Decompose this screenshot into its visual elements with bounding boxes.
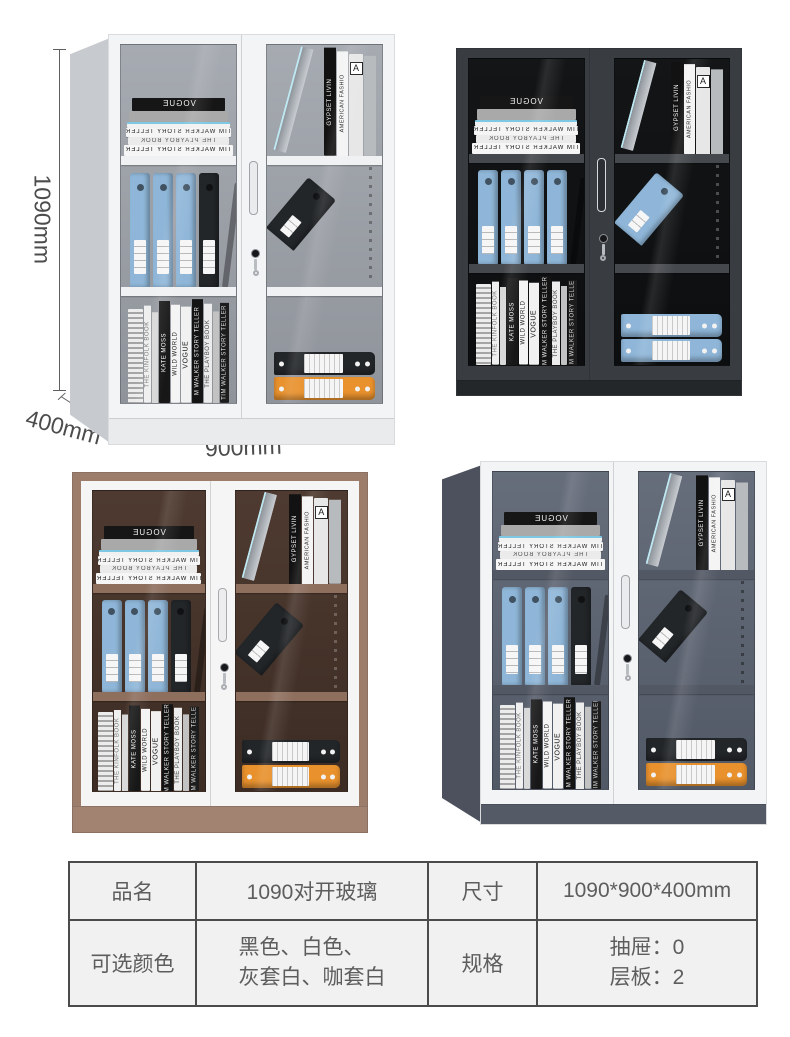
cabinet-right-door: GYPSET LIVINAMERICAN FASHIOA bbox=[613, 462, 766, 804]
binder-ring-hole bbox=[108, 608, 115, 615]
cabinet-base-plinth bbox=[457, 380, 741, 395]
binder-ring-hole bbox=[508, 178, 515, 185]
stacked-book: VOGUE bbox=[480, 96, 573, 109]
left-glass-pane: VOGUETIM WALKER STORY TELLERTHE PLAYBOY … bbox=[492, 471, 609, 790]
blue-ring-binder bbox=[102, 600, 122, 692]
blue-ring-binder bbox=[125, 600, 145, 692]
book-title-text: VOGUE bbox=[162, 100, 196, 108]
book-spine-row: THE KINFOLK BOOKKATE MOSSWILD WORLDVOGUE… bbox=[469, 273, 584, 365]
book-spine bbox=[711, 69, 723, 154]
book-spine-row: THE KINFOLK BOOKKATE MOSSWILD WORLDVOGUE… bbox=[493, 694, 608, 789]
shelf bbox=[236, 584, 348, 593]
binder-ring-hole bbox=[532, 596, 539, 603]
binder-label bbox=[676, 765, 714, 784]
rivet-dot bbox=[365, 386, 370, 391]
binder-ring-hole bbox=[183, 184, 190, 191]
binder-ring-hole bbox=[531, 178, 538, 185]
book-spine: THE PLAYBOY BOOK bbox=[576, 702, 584, 789]
shelf bbox=[267, 156, 382, 165]
blue-ring-binder bbox=[502, 587, 522, 685]
book-title-text: TIM WALKER STORY TELLER bbox=[125, 147, 231, 153]
rivet-dot bbox=[279, 386, 284, 391]
black-ring-binder bbox=[571, 587, 591, 685]
tilted-black-binder bbox=[236, 602, 305, 676]
book-spine: VOGUE bbox=[553, 704, 563, 789]
book-spine: KATE MOSS bbox=[507, 278, 518, 365]
black-ring-binder bbox=[199, 173, 219, 286]
key-ring-icon bbox=[600, 255, 606, 261]
binder-spine-label bbox=[129, 654, 141, 682]
middle-compartment bbox=[469, 163, 584, 264]
book-spine: THE KINFOLK BOOK bbox=[114, 710, 121, 791]
spec-value-colors-line1: 黑色、白色、 bbox=[239, 933, 386, 963]
rivet-dot bbox=[737, 772, 742, 777]
spec-value-colors-text: 黑色、白色、 灰套白、咖套白 bbox=[239, 933, 386, 994]
spec-label-configuration: 规格 bbox=[429, 921, 536, 1005]
right-glass-pane: GYPSET LIVINAMERICAN FASHIOA bbox=[235, 490, 349, 792]
rivet-dot bbox=[727, 772, 732, 777]
book-spine bbox=[122, 715, 128, 792]
binder-spine-label bbox=[529, 645, 541, 674]
binder-ring-hole bbox=[154, 608, 161, 615]
stacked-book: TIM WALKER STORY TELLER bbox=[124, 145, 232, 156]
book-spine: A bbox=[314, 498, 328, 584]
rivet-dot bbox=[712, 323, 717, 328]
blue-ring-binder bbox=[548, 587, 568, 685]
bottom-compartment: THE KINFOLK BOOKKATE MOSSWILD WORLDVOGUE… bbox=[93, 701, 205, 791]
book-title-text: THE PLAYBOY BOOK bbox=[140, 138, 216, 144]
bottom-compartment: THE KINFOLK BOOKKATE MOSSWILD WORLDVOGUE… bbox=[493, 694, 608, 789]
spec-label-colors-text: 可选颜色 bbox=[91, 948, 175, 978]
binder-spine-label bbox=[203, 240, 215, 274]
cabinet-base-plinth bbox=[109, 418, 394, 444]
leaning-binder-sliver bbox=[194, 608, 205, 692]
left-glass-pane: VOGUETIM WALKER STORY TELLERTHE PLAYBOY … bbox=[468, 58, 585, 366]
book-spine: KATE MOSS bbox=[531, 699, 542, 789]
binder-spine-label bbox=[528, 226, 540, 254]
horizontal-book-stack: VOGUETIM WALKER STORY TELLERTHE PLAYBOY … bbox=[124, 45, 232, 156]
binder-ring-hole bbox=[279, 616, 289, 626]
rivet-dot bbox=[355, 386, 360, 391]
blue-ring-binder bbox=[176, 173, 196, 286]
book-title-text: THE PLAYBOY BOOK bbox=[488, 136, 564, 142]
blue-ring-binder bbox=[501, 170, 521, 264]
book-spine: WILD WORLD bbox=[543, 702, 552, 789]
white-cabinet-illustration: VOGUETIM WALKER STORY TELLERTHE PLAYBOY … bbox=[70, 30, 395, 445]
binder-label bbox=[272, 742, 309, 761]
shelf-peg-rail bbox=[369, 167, 372, 284]
book-title-text: VOGUE bbox=[509, 98, 543, 106]
book-title-text: TIM WALKER STORY TELLER bbox=[498, 544, 603, 550]
lock-cylinder-icon bbox=[220, 663, 229, 672]
top-compartment: VOGUETIM WALKER STORY TELLERTHE PLAYBOY … bbox=[121, 45, 236, 156]
binder-spine-label bbox=[106, 654, 118, 682]
cabinet-right-door: GYPSET LIVINAMERICAN FASHIOA bbox=[589, 49, 742, 380]
shelf bbox=[639, 685, 754, 694]
rivet-dot bbox=[727, 747, 732, 752]
rivet-dot bbox=[626, 348, 631, 353]
shelf bbox=[267, 287, 382, 296]
top-compartment: VOGUETIM WALKER STORY TELLERTHE PLAYBOY … bbox=[93, 491, 205, 584]
top-compartment: GYPSET LIVINAMERICAN FASHIOA bbox=[236, 491, 348, 584]
horizontal-book-stack: VOGUETIM WALKER STORY TELLERTHE PLAYBOY … bbox=[96, 491, 201, 584]
binder-spine-label bbox=[280, 214, 302, 237]
book-spine bbox=[213, 311, 219, 403]
cabinet-shell: VOGUETIM WALKER STORY TELLERTHE PLAYBOY … bbox=[72, 472, 368, 833]
middle-compartment bbox=[93, 593, 205, 692]
cabinet-shell: VOGUETIM WALKER STORY TELLERTHE PLAYBOY … bbox=[480, 461, 767, 825]
blue-lying-binder bbox=[621, 339, 722, 362]
book-spine: KATE MOSS bbox=[129, 706, 140, 792]
spec-value-shelves-line: 层板：2 bbox=[610, 963, 685, 993]
binder-spine-label bbox=[180, 240, 192, 274]
lock-cylinder-icon bbox=[251, 249, 260, 258]
rivet-dot bbox=[330, 774, 335, 779]
top-compartment: VOGUETIM WALKER STORY TELLERTHE PLAYBOY … bbox=[469, 59, 584, 154]
hanging-key-icon bbox=[254, 259, 257, 270]
cabinet-doors: VOGUETIM WALKER STORY TELLERTHE PLAYBOY … bbox=[481, 462, 766, 804]
cabinet-side-panel bbox=[70, 38, 110, 443]
left-glass-pane: VOGUETIM WALKER STORY TELLERTHE PLAYBOY … bbox=[120, 44, 237, 404]
shelf bbox=[493, 685, 608, 694]
stacked-book: VOGUE bbox=[504, 512, 597, 525]
shelf bbox=[493, 570, 608, 579]
cabinet-doors: VOGUETIM WALKER STORY TELLERTHE PLAYBOY … bbox=[109, 35, 394, 418]
orange-lying-binder bbox=[646, 763, 747, 786]
bottom-compartment bbox=[615, 273, 730, 365]
book-spine: M WALKER STORY TELLER bbox=[564, 697, 575, 789]
spec-value-colors: 黑色、白色、 灰套白、咖套白 bbox=[197, 921, 427, 1005]
stacked-book: TIM WALKER STORY TELLER bbox=[96, 573, 201, 584]
door-lock-icon bbox=[219, 663, 230, 690]
book-spine bbox=[736, 482, 748, 570]
hanging-key-icon bbox=[602, 244, 605, 255]
cabinet-shell: VOGUETIM WALKER STORY TELLERTHE PLAYBOY … bbox=[456, 48, 742, 396]
door-handle-icon bbox=[218, 588, 227, 642]
book-spine: THE PLAYBOY BOOK bbox=[204, 304, 212, 403]
door-lock-icon bbox=[598, 234, 609, 261]
book-spine-row: GYPSET LIVINAMERICAN FASHIOA bbox=[236, 491, 348, 584]
binder-ring-hole bbox=[578, 596, 585, 603]
spec-label-product-name: 品名 bbox=[70, 863, 195, 919]
shelf bbox=[93, 584, 205, 593]
book-spine: M WALKER STORY TELLER bbox=[162, 704, 173, 791]
book-spine: A bbox=[721, 480, 735, 570]
spec-label-size: 尺寸 bbox=[429, 863, 536, 919]
letter-a-book-mark: A bbox=[697, 75, 710, 88]
book-spine-row: THE KINFOLK BOOKKATE MOSSWILD WORLDVOGUE… bbox=[121, 296, 236, 403]
shelf bbox=[469, 264, 584, 273]
rivet-dot bbox=[365, 361, 370, 366]
cabinet-shell: VOGUETIM WALKER STORY TELLERTHE PLAYBOY … bbox=[108, 34, 395, 445]
book-spine bbox=[524, 708, 530, 789]
cabinet-right-door: GYPSET LIVINAMERICAN FASHIOA bbox=[241, 35, 394, 418]
leaning-binder-sliver bbox=[222, 183, 236, 287]
book-spine bbox=[364, 56, 376, 156]
height-dimension-line bbox=[59, 49, 60, 391]
binder-label bbox=[272, 767, 309, 786]
blue-ring-binder bbox=[148, 600, 168, 692]
middle-compartment bbox=[639, 579, 754, 685]
stacked-book: TIM WALKER STORY TELLER bbox=[498, 542, 603, 551]
spec-value-product-name: 1090对开玻璃 bbox=[197, 863, 427, 919]
stacked-book: TIM WALKER STORY TELLER bbox=[474, 126, 578, 135]
bottom-compartment bbox=[267, 296, 382, 403]
binder-ring-hole bbox=[555, 596, 562, 603]
rivet-dot bbox=[247, 749, 252, 754]
orange-lying-binder bbox=[242, 765, 340, 788]
binder-ring-hole bbox=[206, 184, 213, 191]
top-compartment: GYPSET LIVINAMERICAN FASHIOA bbox=[267, 45, 382, 156]
binder-ring-hole bbox=[485, 178, 492, 185]
binder-ring-hole bbox=[659, 186, 669, 196]
blue-ring-binder bbox=[525, 587, 545, 685]
cabinet-left-door: VOGUETIM WALKER STORY TELLERTHE PLAYBOY … bbox=[81, 481, 210, 806]
tilted-blue-binder bbox=[615, 172, 684, 246]
rivet-dot bbox=[702, 348, 707, 353]
rivet-dot bbox=[279, 361, 284, 366]
shelf bbox=[469, 154, 584, 163]
cabinet-side-panel bbox=[442, 465, 482, 823]
binder-ring-hole bbox=[177, 608, 184, 615]
book-title-text: VOGUE bbox=[132, 529, 166, 537]
book-title-text: THE PLAYBOY BOOK bbox=[512, 552, 588, 558]
letter-a-book-mark: A bbox=[350, 62, 363, 75]
book-spine: GYPSET LIVIN bbox=[324, 48, 336, 156]
spec-value-colors-line2: 灰套白、咖套白 bbox=[239, 963, 386, 993]
binder-spine-label bbox=[551, 226, 563, 254]
binder-label bbox=[652, 341, 690, 360]
rivet-dot bbox=[321, 749, 326, 754]
rivet-dot bbox=[651, 747, 656, 752]
book-title-text: TIM WALKER STORY TELLER bbox=[126, 129, 231, 135]
book-title-text: TIM WALKER STORY TELLER bbox=[98, 558, 200, 564]
middle-compartment bbox=[493, 579, 608, 685]
cabinet-doors: VOGUETIM WALKER STORY TELLERTHE PLAYBOY … bbox=[457, 49, 741, 380]
shelf bbox=[236, 692, 348, 701]
leaning-binder-sliver bbox=[570, 178, 583, 264]
key-ring-icon bbox=[253, 270, 259, 276]
stacked-book: VOGUE bbox=[104, 526, 194, 539]
top-compartment: GYPSET LIVINAMERICAN FASHIOA bbox=[639, 472, 754, 570]
bottom-compartment bbox=[236, 701, 348, 791]
middle-compartment bbox=[236, 593, 348, 692]
shelf bbox=[639, 570, 754, 579]
book-spine bbox=[183, 714, 189, 791]
horizontal-book-stack: VOGUETIM WALKER STORY TELLERTHE PLAYBOY … bbox=[496, 472, 604, 570]
key-ring-icon bbox=[221, 684, 227, 690]
middle-compartment bbox=[267, 165, 382, 287]
rivet-dot bbox=[651, 772, 656, 777]
book-spine: M WALKER STORY TELLER bbox=[540, 276, 551, 365]
bottom-compartment: THE KINFOLK BOOKKATE MOSSWILD WORLDVOGUE… bbox=[469, 273, 584, 365]
right-glass-pane: GYPSET LIVINAMERICAN FASHIOA bbox=[266, 44, 383, 404]
binder-label bbox=[304, 354, 342, 373]
stacked-magazines bbox=[500, 705, 515, 789]
spec-value-configuration: 抽屉：0 层板：2 bbox=[538, 921, 756, 1005]
shelf bbox=[121, 287, 236, 296]
bottom-compartment: THE KINFOLK BOOKKATE MOSSWILD WORLDVOGUE… bbox=[121, 296, 236, 403]
hanging-key-icon bbox=[626, 664, 629, 675]
book-spine: AMERICAN FASHIO bbox=[302, 496, 313, 584]
binder-spine-label bbox=[506, 645, 518, 674]
binder-spine-label bbox=[175, 654, 187, 682]
stacked-book: TIM WALKER STORY TELLER bbox=[496, 559, 604, 570]
shelf-peg-rail bbox=[716, 165, 719, 262]
stacked-magazines bbox=[98, 712, 113, 791]
cabinet-doors: VOGUETIM WALKER STORY TELLERTHE PLAYBOY … bbox=[81, 481, 359, 806]
rivet-dot bbox=[321, 774, 326, 779]
cabinet-base-plinth bbox=[481, 804, 766, 824]
spec-label-size-text: 尺寸 bbox=[462, 876, 504, 906]
book-spine: TIM WALKER STORY TELLER bbox=[592, 701, 601, 789]
horizontal-book-stack: VOGUETIM WALKER STORY TELLERTHE PLAYBOY … bbox=[472, 59, 580, 154]
binder-spine-label bbox=[575, 645, 587, 674]
tilted-black-binder bbox=[639, 589, 708, 663]
cabinet-right-door: GYPSET LIVINAMERICAN FASHIOA bbox=[210, 481, 360, 806]
black-lying-binder bbox=[242, 740, 340, 763]
rivet-dot bbox=[247, 774, 252, 779]
book-spine-row: GYPSET LIVINAMERICAN FASHIOA bbox=[639, 472, 754, 570]
cabinet-variant-brown-trim: VOGUETIM WALKER STORY TELLERTHE PLAYBOY … bbox=[72, 468, 368, 833]
cabinet-left-door: VOGUETIM WALKER STORY TELLERTHE PLAYBOY … bbox=[109, 35, 241, 418]
spec-value-configuration-text: 抽屉：0 层板：2 bbox=[610, 933, 685, 994]
book-spine: TIM WALKER STORY TELLER bbox=[190, 707, 199, 791]
spec-label-colors: 可选颜色 bbox=[70, 921, 195, 1005]
stacked-book: TIM WALKER STORY TELLER bbox=[472, 143, 580, 154]
binder-spine-label bbox=[505, 226, 517, 254]
black-cabinet-illustration: VOGUETIM WALKER STORY TELLERTHE PLAYBOY … bbox=[456, 44, 742, 396]
stacked-book: THE PLAYBOY BOOK bbox=[128, 137, 229, 145]
door-handle-icon bbox=[621, 575, 630, 629]
stacked-magazines bbox=[476, 284, 491, 365]
top-compartment: VOGUETIM WALKER STORY TELLERTHE PLAYBOY … bbox=[493, 472, 608, 570]
stacked-book bbox=[501, 525, 600, 536]
tilted-black-binder bbox=[267, 177, 336, 251]
book-spine: THE KINFOLK BOOK bbox=[492, 282, 499, 365]
stacked-book: TIM WALKER STORY TELLER bbox=[98, 556, 200, 565]
book-spine bbox=[585, 707, 591, 789]
lock-cylinder-icon bbox=[599, 234, 608, 243]
book-spine: VOGUE bbox=[151, 711, 161, 791]
spec-value-product-name-text: 1090对开玻璃 bbox=[247, 876, 378, 906]
top-compartment: GYPSET LIVINAMERICAN FASHIOA bbox=[615, 59, 730, 154]
blue-ring-binder bbox=[524, 170, 544, 264]
book-title-text: TIM WALKER STORY TELLER bbox=[96, 576, 201, 582]
stacked-book bbox=[129, 111, 228, 122]
middle-compartment bbox=[121, 165, 236, 287]
black-lying-binder bbox=[274, 352, 375, 375]
blue-ring-binder bbox=[478, 170, 498, 264]
book-spine: GYPSET LIVIN bbox=[671, 62, 683, 154]
binder-spine-label bbox=[152, 654, 164, 682]
book-spine: AMERICAN FASHIO bbox=[337, 51, 348, 156]
book-spine: VOGUE bbox=[529, 283, 539, 365]
book-title-text: THE PLAYBOY BOOK bbox=[111, 566, 187, 572]
binder-label bbox=[304, 379, 342, 398]
binder-label bbox=[652, 316, 690, 335]
stacked-book bbox=[475, 120, 577, 126]
spec-value-drawers-line: 抽屉：0 bbox=[610, 933, 685, 963]
leaning-binder-sliver bbox=[594, 595, 608, 685]
rivet-dot bbox=[712, 348, 717, 353]
cabinet-left-door: VOGUETIM WALKER STORY TELLERTHE PLAYBOY … bbox=[481, 462, 613, 804]
spec-label-product-name-text: 品名 bbox=[112, 876, 154, 906]
hanging-key-icon bbox=[223, 673, 226, 684]
rivet-dot bbox=[737, 747, 742, 752]
spec-value-size: 1090*900*400mm bbox=[538, 863, 756, 919]
book-spine: TIM WALKER STORY TELLER bbox=[220, 303, 229, 403]
book-spine: GYPSET LIVIN bbox=[696, 475, 708, 570]
book-spine: A bbox=[696, 67, 710, 154]
binder-ring-hole bbox=[554, 178, 561, 185]
cabinet-variant-black: VOGUETIM WALKER STORY TELLERTHE PLAYBOY … bbox=[456, 44, 742, 396]
book-spine-row: GYPSET LIVINAMERICAN FASHIOA bbox=[615, 59, 730, 154]
stacked-magazines bbox=[128, 309, 143, 404]
binder-spine-label bbox=[482, 226, 494, 254]
book-spine: A bbox=[349, 54, 363, 156]
height-dimension-label: 1090mm bbox=[29, 175, 56, 261]
bottom-compartment bbox=[639, 694, 754, 789]
door-lock-icon bbox=[250, 249, 261, 276]
cabinet-variant-white: VOGUETIM WALKER STORY TELLERTHE PLAYBOY … bbox=[70, 30, 395, 445]
stacked-book: THE PLAYBOY BOOK bbox=[100, 565, 197, 573]
spec-label-configuration-text: 规格 bbox=[462, 948, 504, 978]
binder-label bbox=[676, 740, 714, 759]
book-spine: AMERICAN FASHIO bbox=[684, 64, 695, 154]
blue-ring-binder bbox=[547, 170, 567, 264]
binder-ring-hole bbox=[311, 191, 321, 201]
book-spine: M WALKER STORY TELLER bbox=[192, 299, 203, 403]
right-glass-pane: GYPSET LIVINAMERICAN FASHIOA bbox=[614, 58, 731, 366]
lock-cylinder-icon bbox=[623, 654, 632, 663]
binder-spine-label bbox=[134, 240, 146, 274]
cabinet-left-door: VOGUETIM WALKER STORY TELLERTHE PLAYBOY … bbox=[457, 49, 589, 380]
product-detail-image: 1090mm 400mm 900mm VOGUETIM WALKER STORY… bbox=[0, 0, 790, 1037]
black-lying-binder bbox=[646, 738, 747, 761]
cabinet-variant-gray-trim: VOGUETIM WALKER STORY TELLERTHE PLAYBOY … bbox=[442, 457, 767, 825]
letter-a-book-mark: A bbox=[315, 506, 328, 519]
binder-spine-label bbox=[552, 645, 564, 674]
book-spine: WILD WORLD bbox=[141, 709, 150, 791]
binder-spine-label bbox=[627, 210, 649, 233]
black-ring-binder bbox=[171, 600, 191, 692]
cabinet-base-plinth bbox=[73, 806, 367, 832]
orange-lying-binder bbox=[274, 377, 375, 400]
binder-spine-label bbox=[652, 627, 674, 650]
book-spine: WILD WORLD bbox=[519, 281, 528, 365]
book-spine: THE PLAYBOY BOOK bbox=[552, 281, 560, 365]
binder-ring-hole bbox=[509, 596, 516, 603]
key-ring-icon bbox=[625, 675, 631, 681]
middle-compartment bbox=[615, 163, 730, 264]
shelf bbox=[121, 156, 236, 165]
stacked-book bbox=[477, 109, 576, 120]
blue-ring-binder bbox=[130, 173, 150, 286]
book-spine-row: GYPSET LIVINAMERICAN FASHIOA bbox=[267, 45, 382, 156]
book-spine: TIM WALKER STORY TELLER bbox=[568, 280, 577, 365]
book-spine: THE PLAYBOY BOOK bbox=[174, 708, 182, 791]
shelf-peg-rail bbox=[741, 581, 744, 682]
book-spine: AMERICAN FASHIO bbox=[709, 477, 720, 570]
binder-spine-label bbox=[157, 240, 169, 274]
shelf bbox=[615, 264, 730, 273]
letter-a-book-mark: A bbox=[722, 488, 735, 501]
binder-ring-hole bbox=[683, 603, 693, 613]
rivet-dot bbox=[626, 323, 631, 328]
book-spine: THE KINFOLK BOOK bbox=[516, 703, 523, 789]
door-handle-icon bbox=[249, 161, 258, 215]
